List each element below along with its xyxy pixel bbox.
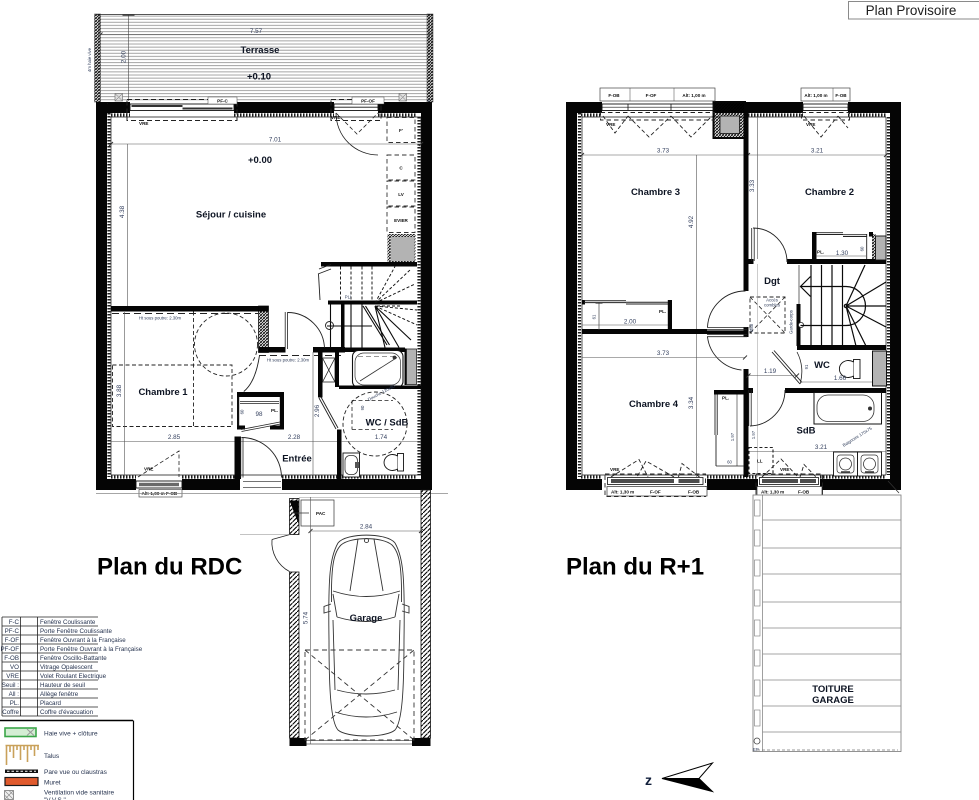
svg-text:Garage: Garage xyxy=(350,613,383,624)
svg-text:GARAGE: GARAGE xyxy=(812,695,854,706)
svg-text:EVIER: EVIER xyxy=(394,218,408,223)
svg-text:PF-OF: PF-OF xyxy=(0,646,19,653)
svg-text:WC / SdB: WC / SdB xyxy=(366,418,409,429)
svg-text:Chambre 2: Chambre 2 xyxy=(805,187,854,198)
svg-text:Alt: 1,30 m: Alt: 1,30 m xyxy=(611,490,634,495)
svg-text:Chambre 3: Chambre 3 xyxy=(631,187,680,198)
svg-text:3.88: 3.88 xyxy=(116,384,123,397)
svg-text:3.21: 3.21 xyxy=(811,148,824,155)
svg-text:F-OF: F-OF xyxy=(650,490,661,495)
svg-text:Séjour / cuisine: Séjour / cuisine xyxy=(196,210,266,221)
svg-text:1.19: 1.19 xyxy=(764,368,777,375)
svg-text:Ht sous poutre: 2.30m: Ht sous poutre: 2.30m xyxy=(267,358,310,363)
svg-text:2.00: 2.00 xyxy=(121,50,128,63)
svg-text:VRE: VRE xyxy=(139,121,148,126)
svg-text:90: 90 xyxy=(360,405,365,410)
svg-text:PL.: PL. xyxy=(659,309,666,314)
svg-text:Volet Roulant Electrique: Volet Roulant Electrique xyxy=(40,673,107,680)
svg-text:F-OF: F-OF xyxy=(5,637,20,644)
svg-text:F-C: F-C xyxy=(9,619,20,626)
svg-text:1.30: 1.30 xyxy=(836,250,849,257)
svg-text:7.01: 7.01 xyxy=(269,137,282,144)
svg-text:3.34: 3.34 xyxy=(688,396,695,409)
svg-text:4.38: 4.38 xyxy=(119,205,126,218)
svg-text:2.28: 2.28 xyxy=(288,434,301,441)
svg-text:VRE: VRE xyxy=(144,467,153,472)
svg-text:Chambre 1: Chambre 1 xyxy=(138,387,188,398)
svg-text:3.33: 3.33 xyxy=(749,179,756,192)
svg-text:Plan du RDC: Plan du RDC xyxy=(97,554,242,581)
svg-text:PL.: PL. xyxy=(271,408,278,413)
svg-text:LV: LV xyxy=(398,192,404,197)
svg-text:PL.: PL. xyxy=(10,700,20,707)
svg-text:91: 91 xyxy=(804,364,809,369)
svg-text:Seuil :: Seuil : xyxy=(2,682,19,689)
svg-text:Alt: 1,00 m: Alt: 1,00 m xyxy=(682,93,705,98)
svg-text:Muret: Muret xyxy=(44,780,61,787)
svg-text:Fenêtre Coulissante: Fenêtre Coulissante xyxy=(40,619,96,626)
svg-text:1.97: 1.97 xyxy=(751,430,756,439)
svg-text:+0.00: +0.00 xyxy=(248,155,272,166)
svg-text:F-OB: F-OB xyxy=(798,490,810,495)
svg-text:F': F' xyxy=(399,128,403,133)
svg-text:F-OB: F-OB xyxy=(608,93,620,98)
svg-text:3.73: 3.73 xyxy=(657,148,670,155)
svg-text:PF-OF: PF-OF xyxy=(361,99,375,104)
svg-text:Haie vive + clôture: Haie vive + clôture xyxy=(44,731,98,738)
svg-text:5.74: 5.74 xyxy=(303,611,310,624)
svg-text:PF-C: PF-C xyxy=(5,628,20,635)
svg-text:PLI: PLI xyxy=(345,295,351,300)
svg-text:2.85: 2.85 xyxy=(168,434,181,441)
svg-text:VRE: VRE xyxy=(331,115,340,120)
svg-text:All :: All : xyxy=(9,691,20,698)
svg-text:61: 61 xyxy=(592,314,597,319)
svg-text:WC: WC xyxy=(814,360,830,371)
svg-text:Porte Fenêtre Ouvrant à la Fra: Porte Fenêtre Ouvrant à la Française xyxy=(40,646,143,653)
svg-text:VRE: VRE xyxy=(806,122,815,127)
svg-text:Terrasse: Terrasse xyxy=(241,45,280,56)
svg-text:combles: combles xyxy=(764,303,780,308)
svg-text:60: 60 xyxy=(727,460,732,465)
svg-text:Allège fenêtre: Allège fenêtre xyxy=(40,691,79,698)
svg-text:Entrée: Entrée xyxy=(282,454,312,465)
svg-text:TOITURE: TOITURE xyxy=(812,684,854,695)
svg-text:1.74: 1.74 xyxy=(375,434,388,441)
svg-text:Ht sous poutre: 2.30m: Ht sous poutre: 2.30m xyxy=(139,316,182,321)
svg-text:VRE: VRE xyxy=(606,122,615,127)
svg-text:Alt: 1,00 m: Alt: 1,00 m xyxy=(804,93,827,98)
svg-text:Placard: Placard xyxy=(40,700,62,707)
svg-text:Dgt: Dgt xyxy=(764,276,781,287)
svg-text:Alt: 1,30 m: Alt: 1,30 m xyxy=(761,490,784,495)
svg-text:Talus: Talus xyxy=(44,753,60,760)
svg-text:Porte Fenêtre Coulissante: Porte Fenêtre Coulissante xyxy=(40,628,112,635)
svg-text:Fenêtre Oscillo-Battante: Fenêtre Oscillo-Battante xyxy=(40,655,107,662)
svg-text:SdB: SdB xyxy=(797,426,816,437)
svg-text:PAC: PAC xyxy=(316,511,326,516)
svg-text:3.73: 3.73 xyxy=(657,350,670,357)
svg-text:LL: LL xyxy=(757,459,763,464)
svg-text:Hauteur de seuil: Hauteur de seuil xyxy=(40,682,85,689)
svg-text:1.66: 1.66 xyxy=(834,375,847,382)
svg-text:VRE: VRE xyxy=(6,673,19,680)
svg-text:EP: EP xyxy=(753,747,759,752)
svg-text:Ø88: Ø88 xyxy=(749,323,754,332)
svg-text:Plan Provisoire: Plan Provisoire xyxy=(866,3,957,18)
svg-text:2.96: 2.96 xyxy=(314,404,321,417)
svg-text:4.92: 4.92 xyxy=(688,215,695,228)
svg-text:VO: VO xyxy=(10,664,19,671)
svg-text:Vitrage Opalescent: Vitrage Opalescent xyxy=(40,664,93,671)
svg-text:Chambre 4: Chambre 4 xyxy=(629,399,679,410)
svg-text:2.84: 2.84 xyxy=(360,524,373,531)
svg-text:3.21: 3.21 xyxy=(815,444,828,451)
svg-text:60: 60 xyxy=(860,246,865,251)
svg-text:7.57: 7.57 xyxy=(250,28,263,35)
svg-text:2.00: 2.00 xyxy=(624,319,637,326)
svg-text:1.97: 1.97 xyxy=(730,432,735,441)
svg-text:F-OB: F-OB xyxy=(688,490,700,495)
svg-text:+0.10: +0.10 xyxy=(247,72,271,83)
svg-text:PL.: PL. xyxy=(722,396,729,401)
svg-text:Pare vue ou claustras: Pare vue ou claustras xyxy=(44,769,108,776)
svg-text:F-OF: F-OF xyxy=(646,93,657,98)
svg-text:VRE: VRE xyxy=(610,467,619,472)
svg-text:Ventilation vide sanitaire: Ventilation vide sanitaire xyxy=(44,790,114,797)
svg-text:4m haie vive: 4m haie vive xyxy=(87,47,92,72)
svg-text:98: 98 xyxy=(255,411,263,418)
svg-text:F-OB: F-OB xyxy=(835,93,847,98)
svg-text:VRE: VRE xyxy=(780,467,789,472)
svg-text:PL.: PL. xyxy=(817,250,824,255)
svg-text:Coffre d'évacuation: Coffre d'évacuation xyxy=(40,709,94,716)
svg-text:F-OB: F-OB xyxy=(4,655,19,662)
svg-text:Plan du R+1: Plan du R+1 xyxy=(566,554,704,581)
svg-text:Garde-corps: Garde-corps xyxy=(789,310,794,334)
svg-text:PF-C: PF-C xyxy=(217,99,228,104)
svg-text:Fenêtre Ouvrant à la Française: Fenêtre Ouvrant à la Française xyxy=(40,637,126,644)
svg-text:z: z xyxy=(645,772,652,788)
svg-text:Coffre: Coffre xyxy=(2,709,19,716)
svg-text:60: 60 xyxy=(240,409,245,414)
